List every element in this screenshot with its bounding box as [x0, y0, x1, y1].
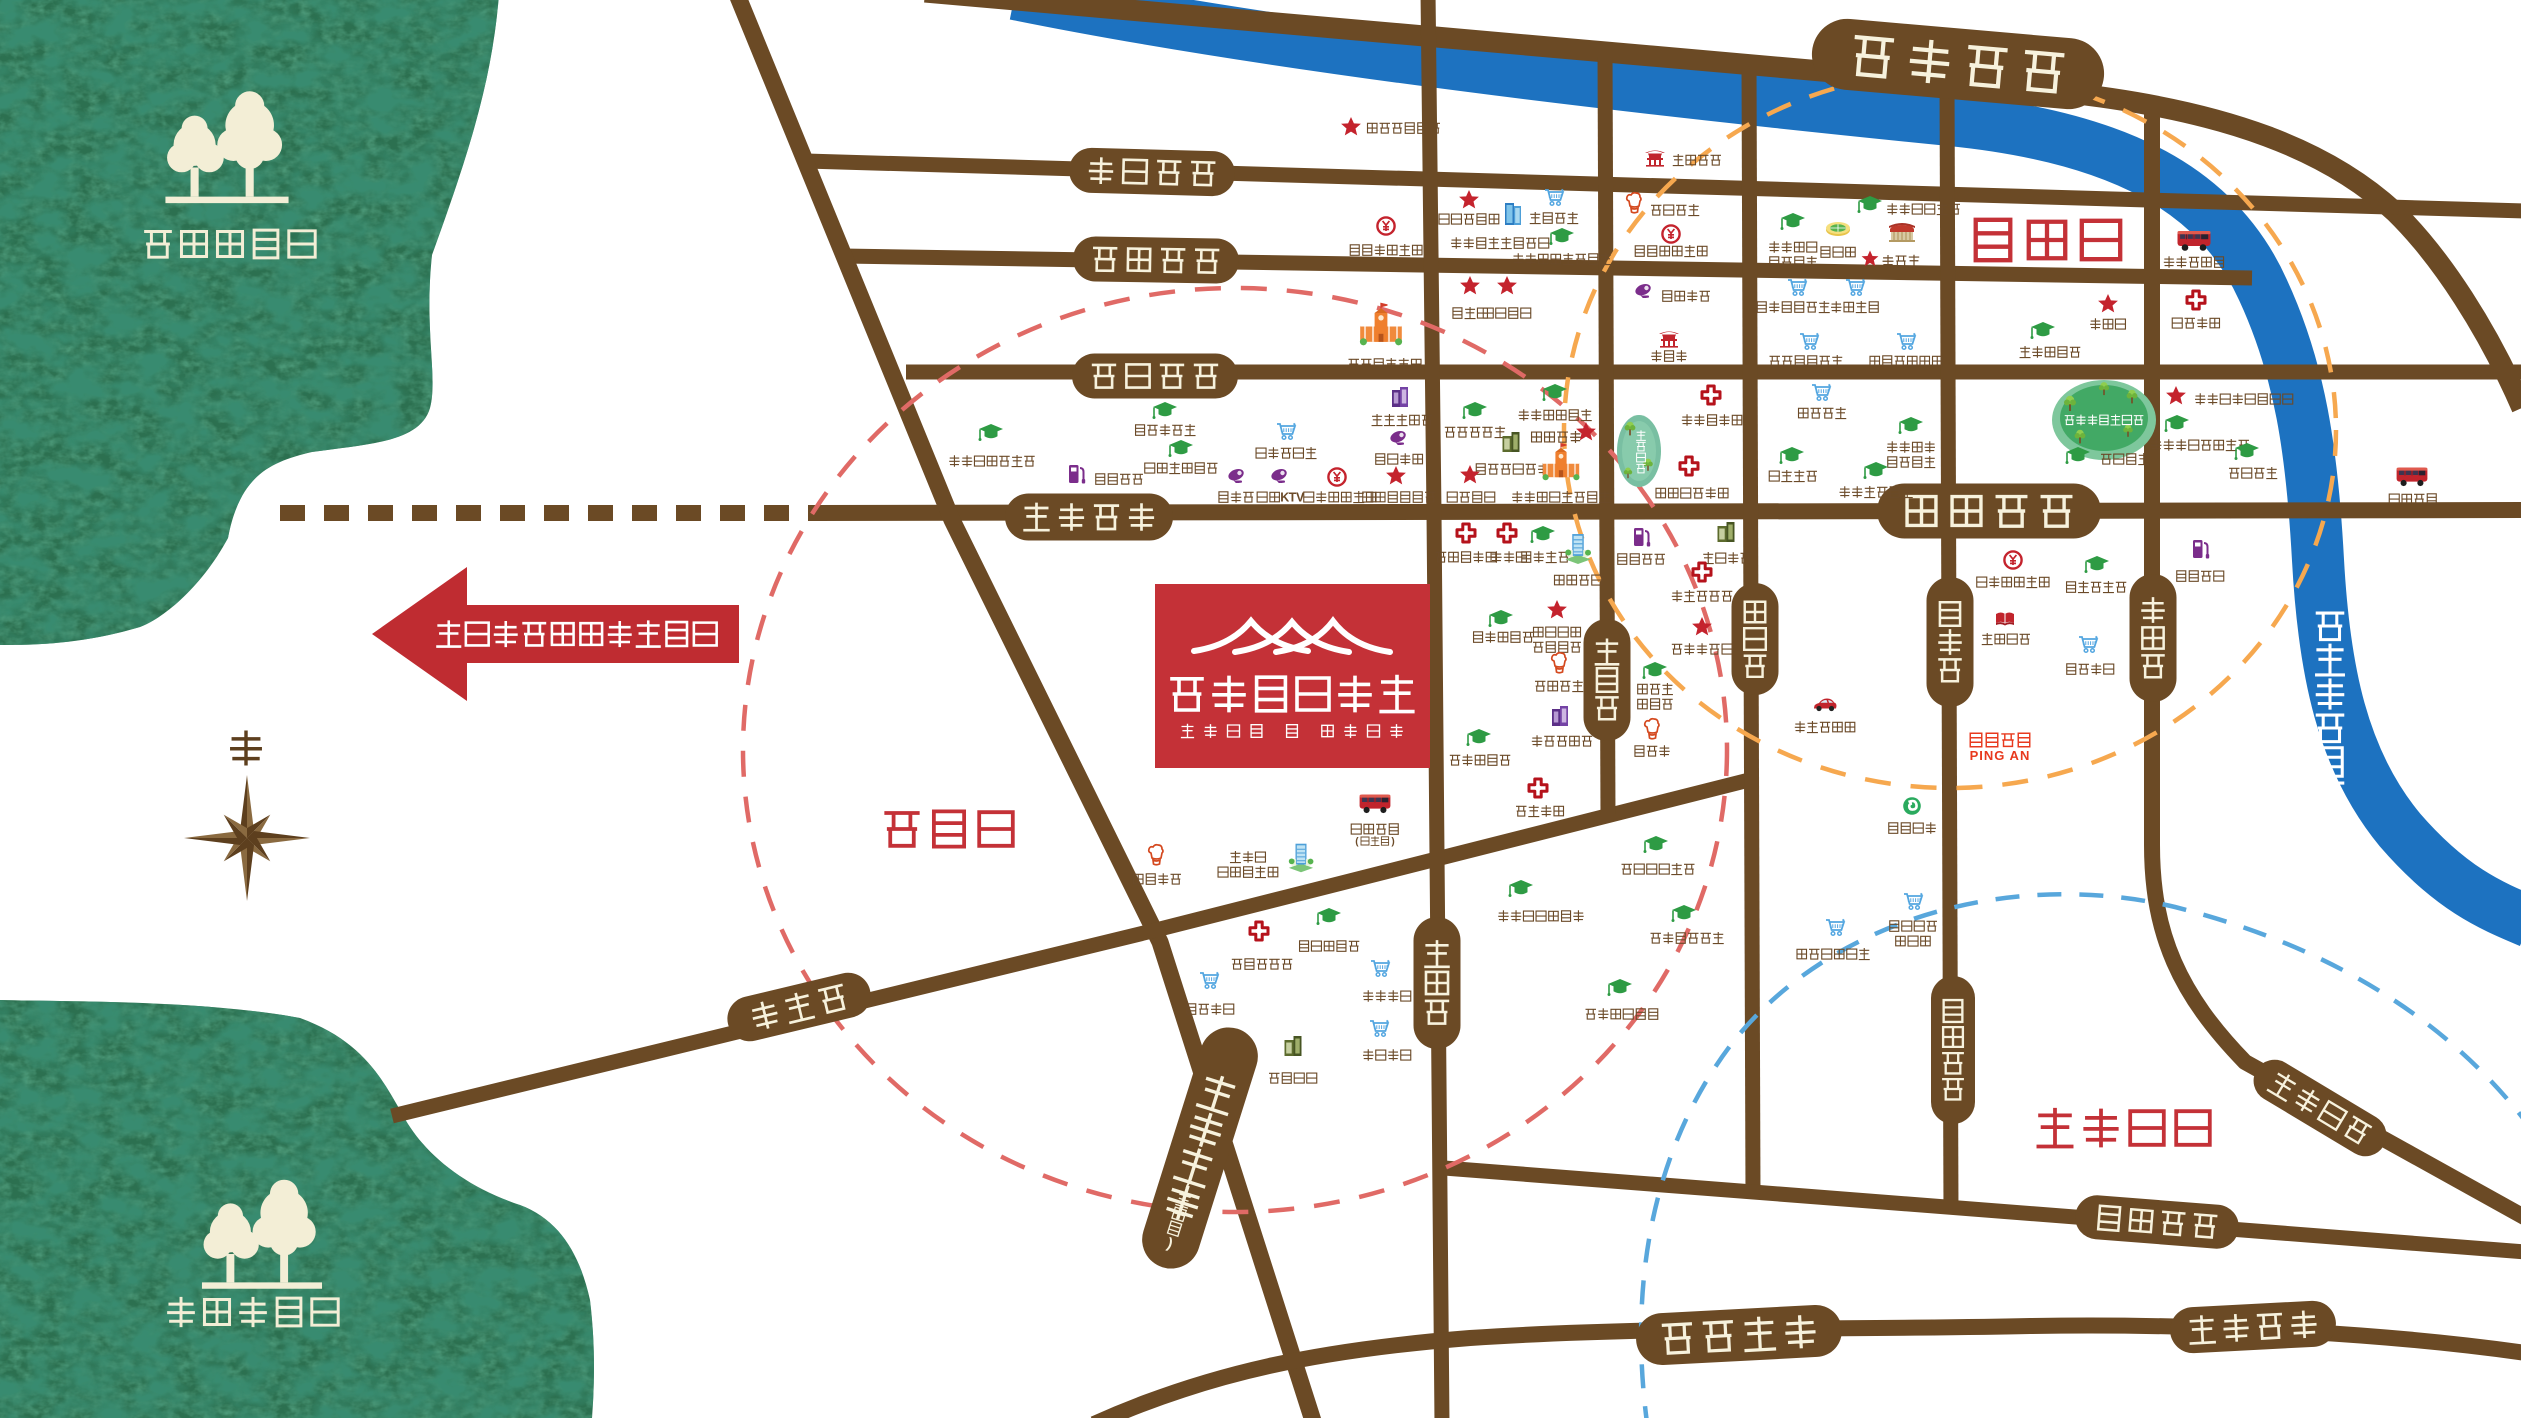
- svg-text:): ): [1391, 837, 1394, 848]
- svg-text:PING AN: PING AN: [1970, 748, 2031, 763]
